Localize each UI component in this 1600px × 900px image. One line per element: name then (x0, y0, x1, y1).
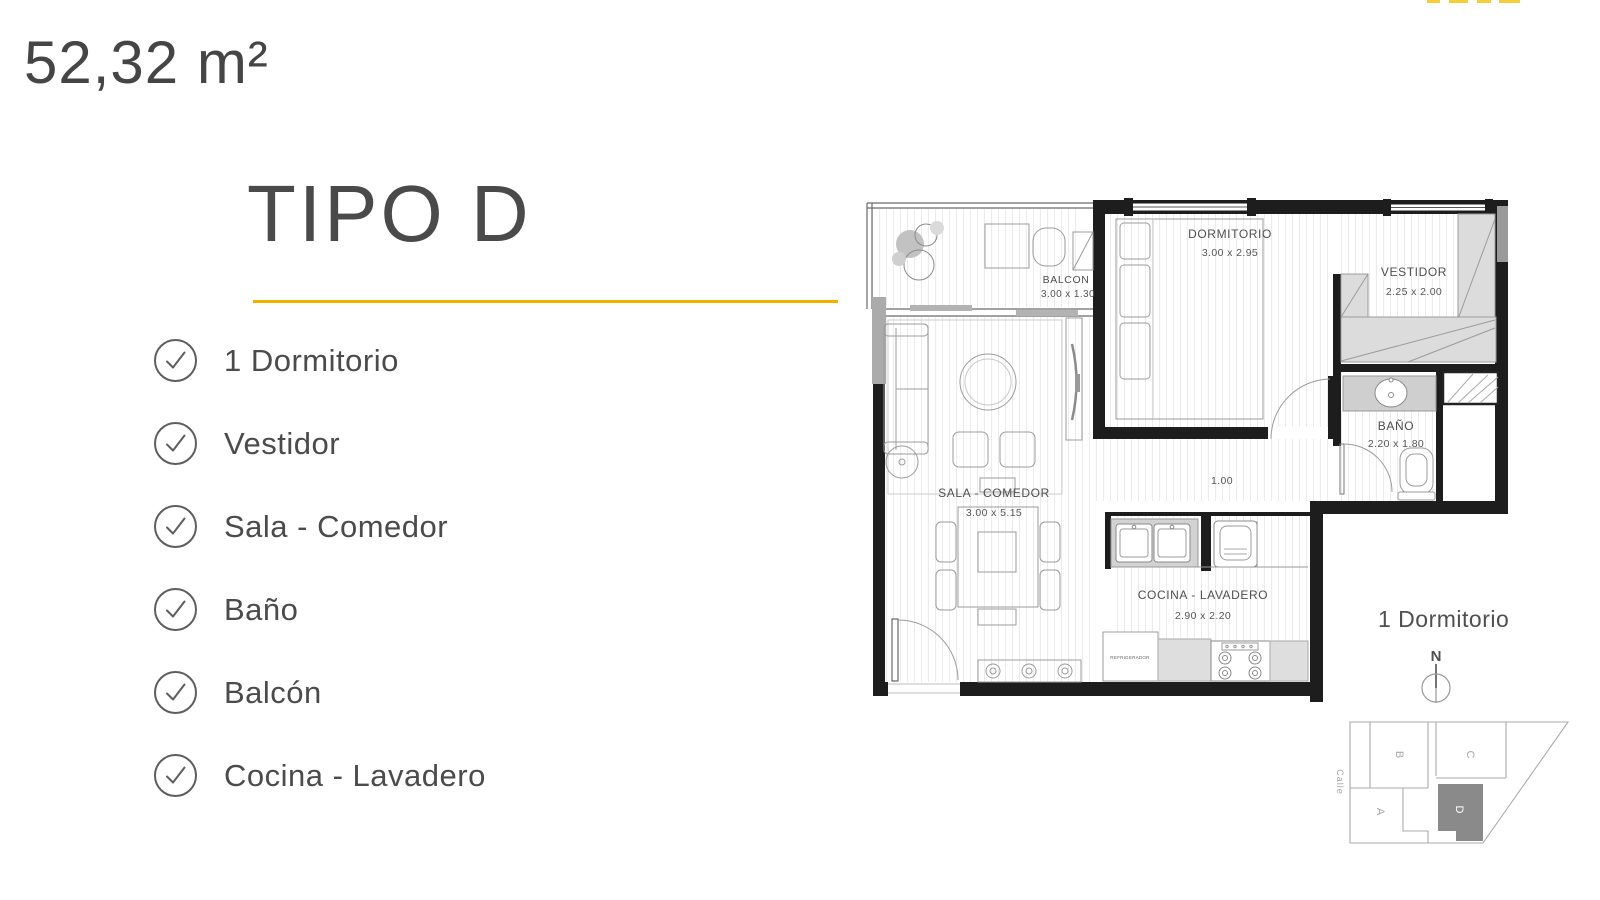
area-label: 52,32 m² (24, 28, 269, 97)
room-label-balcon: BALCON (1043, 274, 1090, 286)
cropped-logo-icon (1425, 0, 1545, 5)
room-dims-balcon: 3.00 x 1.30 (1041, 289, 1095, 300)
feature-label: Baño (224, 592, 298, 628)
check-circle-icon (153, 504, 198, 549)
room-label-bano: BAÑO (1378, 419, 1414, 433)
feature-label: Balcón (224, 675, 322, 711)
room-label-dormitorio: DORMITORIO (1188, 227, 1272, 241)
list-item: Balcón (153, 670, 486, 715)
duct-shaft (1443, 372, 1498, 404)
check-circle-icon (153, 670, 198, 715)
feature-list: 1 Dormitorio Vestidor Sala - Comedor Bañ… (153, 338, 486, 836)
street-label: Calle (1335, 769, 1345, 795)
site-unit-a-label: A (1374, 808, 1386, 816)
room-dims-bano: 2.20 x 1.80 (1368, 438, 1424, 450)
feature-label: Sala - Comedor (224, 509, 448, 545)
room-dims-cocina: 2.90 x 2.20 (1175, 610, 1231, 622)
check-circle-icon (153, 587, 198, 632)
room-label-sala: SALA - COMEDOR (938, 486, 1050, 500)
site-unit-c-label: C (1464, 751, 1476, 760)
room-dims-vestidor: 2.25 x 2.00 (1386, 286, 1442, 298)
unit-type-label: 1 Dormitorio (1378, 606, 1509, 633)
hall-dimension: 1.00 (1211, 475, 1233, 487)
refrigerator-label: REFRIGERADOR (1110, 655, 1150, 660)
room-label-vestidor: VESTIDOR (1381, 265, 1447, 279)
list-item: Cocina - Lavadero (153, 753, 486, 798)
feature-label: Cocina - Lavadero (224, 758, 486, 794)
feature-label: Vestidor (224, 426, 340, 462)
site-unit-b-label: B (1393, 751, 1405, 759)
room-dims-sala: 3.00 x 5.15 (966, 507, 1022, 519)
north-arrow-icon: N (1412, 646, 1462, 708)
list-item: Sala - Comedor (153, 504, 486, 549)
list-item: Vestidor (153, 421, 486, 466)
accent-underline (253, 300, 838, 303)
site-unit-d-label: D (1453, 806, 1465, 815)
list-item: 1 Dormitorio (153, 338, 486, 383)
room-dims-dormitorio: 3.00 x 2.95 (1202, 247, 1258, 259)
north-label: N (1431, 648, 1442, 665)
list-item: Baño (153, 587, 486, 632)
toilet (1400, 448, 1433, 494)
room-label-cocina: COCINA - LAVADERO (1138, 588, 1268, 602)
page-title: TIPO D (247, 168, 532, 260)
feature-label: 1 Dormitorio (224, 343, 399, 379)
column (1497, 206, 1508, 262)
check-circle-icon (153, 338, 198, 383)
site-key-plan: B C A D Calle (1330, 712, 1580, 852)
page: 52,32 m² TIPO D 1 Dormitorio Vestidor Sa… (0, 0, 1600, 900)
check-circle-icon (153, 421, 198, 466)
check-circle-icon (153, 753, 198, 798)
